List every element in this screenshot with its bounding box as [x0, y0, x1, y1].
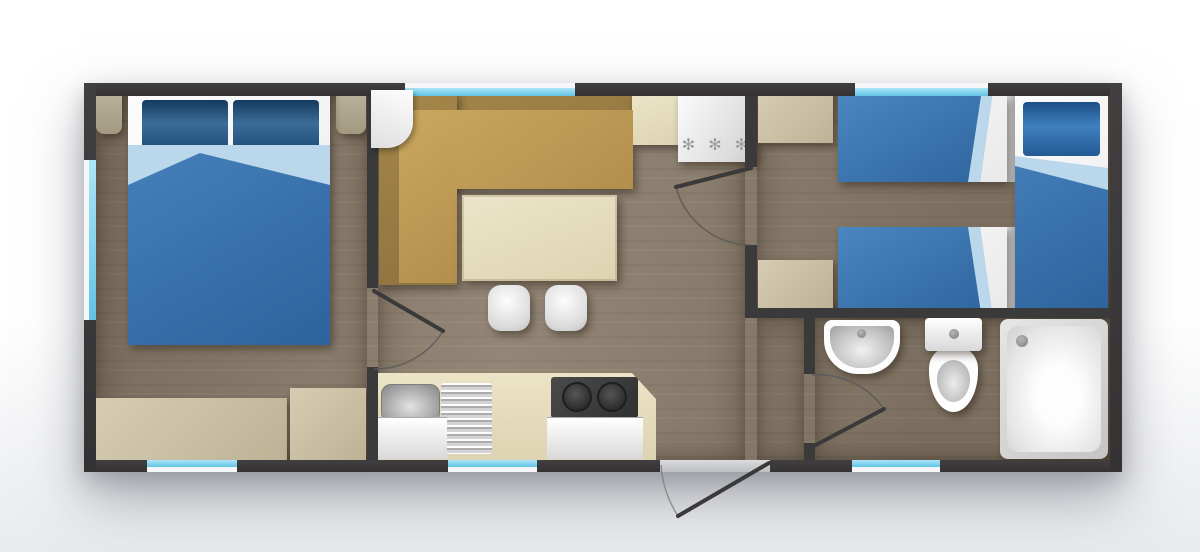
nightstand-left: [96, 94, 122, 134]
partition-bedroom1-lower: [367, 367, 378, 460]
basin-tap: [857, 329, 866, 338]
bathroom-wall-top: [745, 308, 1110, 318]
flush-button: [949, 329, 959, 339]
dining-table: [462, 195, 617, 281]
window-bedroom2-top-glass: [855, 88, 988, 96]
window-bathroom-bottom-glass: [852, 460, 940, 467]
stool-left: [488, 285, 530, 331]
floor-plan-canvas: ✻ ✻ ✻: [0, 0, 1200, 552]
sink-cabinet-front: [371, 417, 447, 459]
partition-bedroom2-lower: [745, 245, 757, 310]
double-bed: [128, 90, 330, 345]
twin-cabinet-top: [758, 94, 833, 143]
window-bedroom1-bottom-glass: [147, 460, 237, 467]
tall-cabinet: [632, 92, 680, 145]
bedroom-sideboard: [96, 398, 287, 460]
burner-right: [597, 382, 627, 412]
burner-left: [562, 382, 592, 412]
stove: [551, 377, 638, 418]
toilet-bowl-inner: [937, 360, 970, 402]
single-bed-top-fold: [838, 96, 1007, 182]
single-bed-right: [1015, 94, 1108, 315]
outer-wall-right: [1110, 83, 1122, 472]
window-living-top-glass: [405, 88, 575, 96]
entrance-threshold: [660, 460, 770, 472]
shower-tray: [1000, 319, 1108, 459]
nightstand-right: [336, 94, 366, 134]
shower-drain: [1016, 335, 1028, 347]
single-bed-bottom-fold: [838, 227, 1007, 313]
partition-bedroom2-upper: [745, 96, 757, 167]
single-bed-top: [838, 96, 1007, 182]
stove-cabinet-front: [547, 417, 643, 459]
draining-board: [441, 383, 492, 454]
window-bedroom1-left-glass: [89, 160, 96, 320]
twin-cabinet-bottom: [758, 260, 833, 310]
toilet-cistern: [925, 318, 982, 351]
pillow-right-bed: [1023, 102, 1100, 156]
bathroom-wall-left-upper: [804, 318, 815, 374]
window-kitchen-bottom-glass: [448, 460, 537, 467]
bathroom-wall-left-stub: [804, 443, 815, 460]
outer-wall-bottom: [84, 460, 1122, 472]
single-bed-bottom: [838, 227, 1007, 313]
bedroom-cabinet: [290, 388, 366, 460]
stool-right: [545, 285, 587, 331]
hallway: [757, 318, 804, 460]
